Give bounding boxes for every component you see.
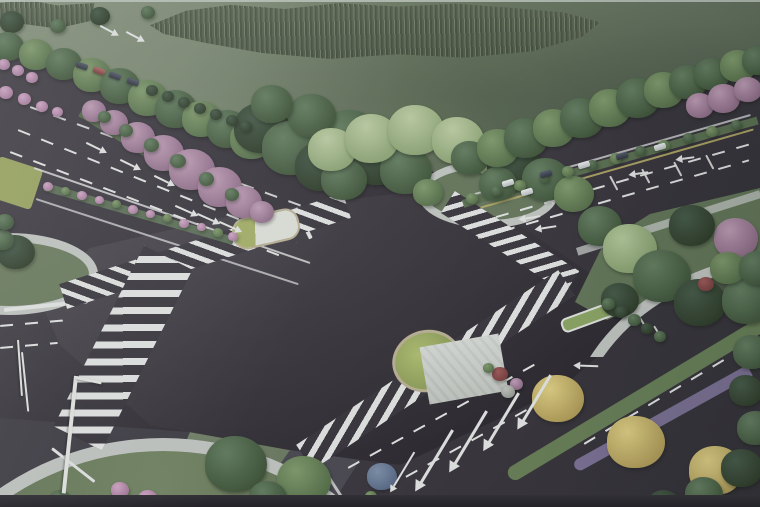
tree xyxy=(98,111,111,123)
tree xyxy=(492,367,508,381)
tree xyxy=(226,115,238,126)
tree xyxy=(706,126,718,137)
tree xyxy=(250,201,274,223)
tree xyxy=(50,19,66,33)
tree xyxy=(602,298,615,310)
tree xyxy=(737,411,760,445)
tree xyxy=(654,331,666,342)
tree xyxy=(635,146,646,156)
tree xyxy=(163,214,172,222)
tree xyxy=(733,335,760,369)
tree xyxy=(729,375,760,406)
tree xyxy=(43,182,53,191)
tree xyxy=(112,200,121,208)
tree xyxy=(669,205,715,246)
tree xyxy=(251,85,293,123)
tree xyxy=(26,72,38,83)
tree xyxy=(491,186,502,196)
tree xyxy=(194,103,206,114)
tree xyxy=(607,416,665,468)
tree xyxy=(146,210,155,218)
tree xyxy=(144,138,159,152)
tree xyxy=(0,11,24,33)
tree xyxy=(170,154,186,168)
tree xyxy=(61,187,70,195)
tree xyxy=(197,223,206,231)
tree xyxy=(146,85,158,96)
tree xyxy=(641,323,653,334)
tree xyxy=(119,124,133,137)
tree xyxy=(179,219,189,228)
tree xyxy=(413,179,443,206)
rock xyxy=(501,385,515,398)
tree xyxy=(0,59,10,70)
tree xyxy=(0,86,13,99)
tree xyxy=(734,77,760,102)
tree xyxy=(12,65,24,76)
tree xyxy=(52,107,63,117)
tree xyxy=(213,228,223,237)
tree xyxy=(162,91,174,102)
tree xyxy=(615,306,628,318)
tree xyxy=(90,7,110,25)
tree xyxy=(683,133,694,143)
tree xyxy=(554,176,594,212)
intersection-rendering xyxy=(0,0,760,507)
tree xyxy=(466,193,478,204)
tree xyxy=(95,196,104,204)
tree xyxy=(532,375,584,422)
tree xyxy=(731,120,742,130)
photo-edge-top xyxy=(0,0,760,2)
tree xyxy=(210,109,222,120)
photo-frame-bottom xyxy=(0,495,760,507)
tree xyxy=(483,363,494,373)
tree xyxy=(128,205,138,214)
tree xyxy=(199,172,214,186)
tree xyxy=(77,191,87,200)
tree xyxy=(562,166,574,177)
tree xyxy=(721,449,760,487)
tree xyxy=(36,101,48,112)
tree xyxy=(698,277,714,291)
tree xyxy=(742,46,760,75)
tree xyxy=(141,6,155,19)
tree xyxy=(18,93,31,105)
tree xyxy=(178,97,190,108)
tree xyxy=(225,188,239,201)
tree xyxy=(240,121,252,132)
tree xyxy=(628,314,641,326)
